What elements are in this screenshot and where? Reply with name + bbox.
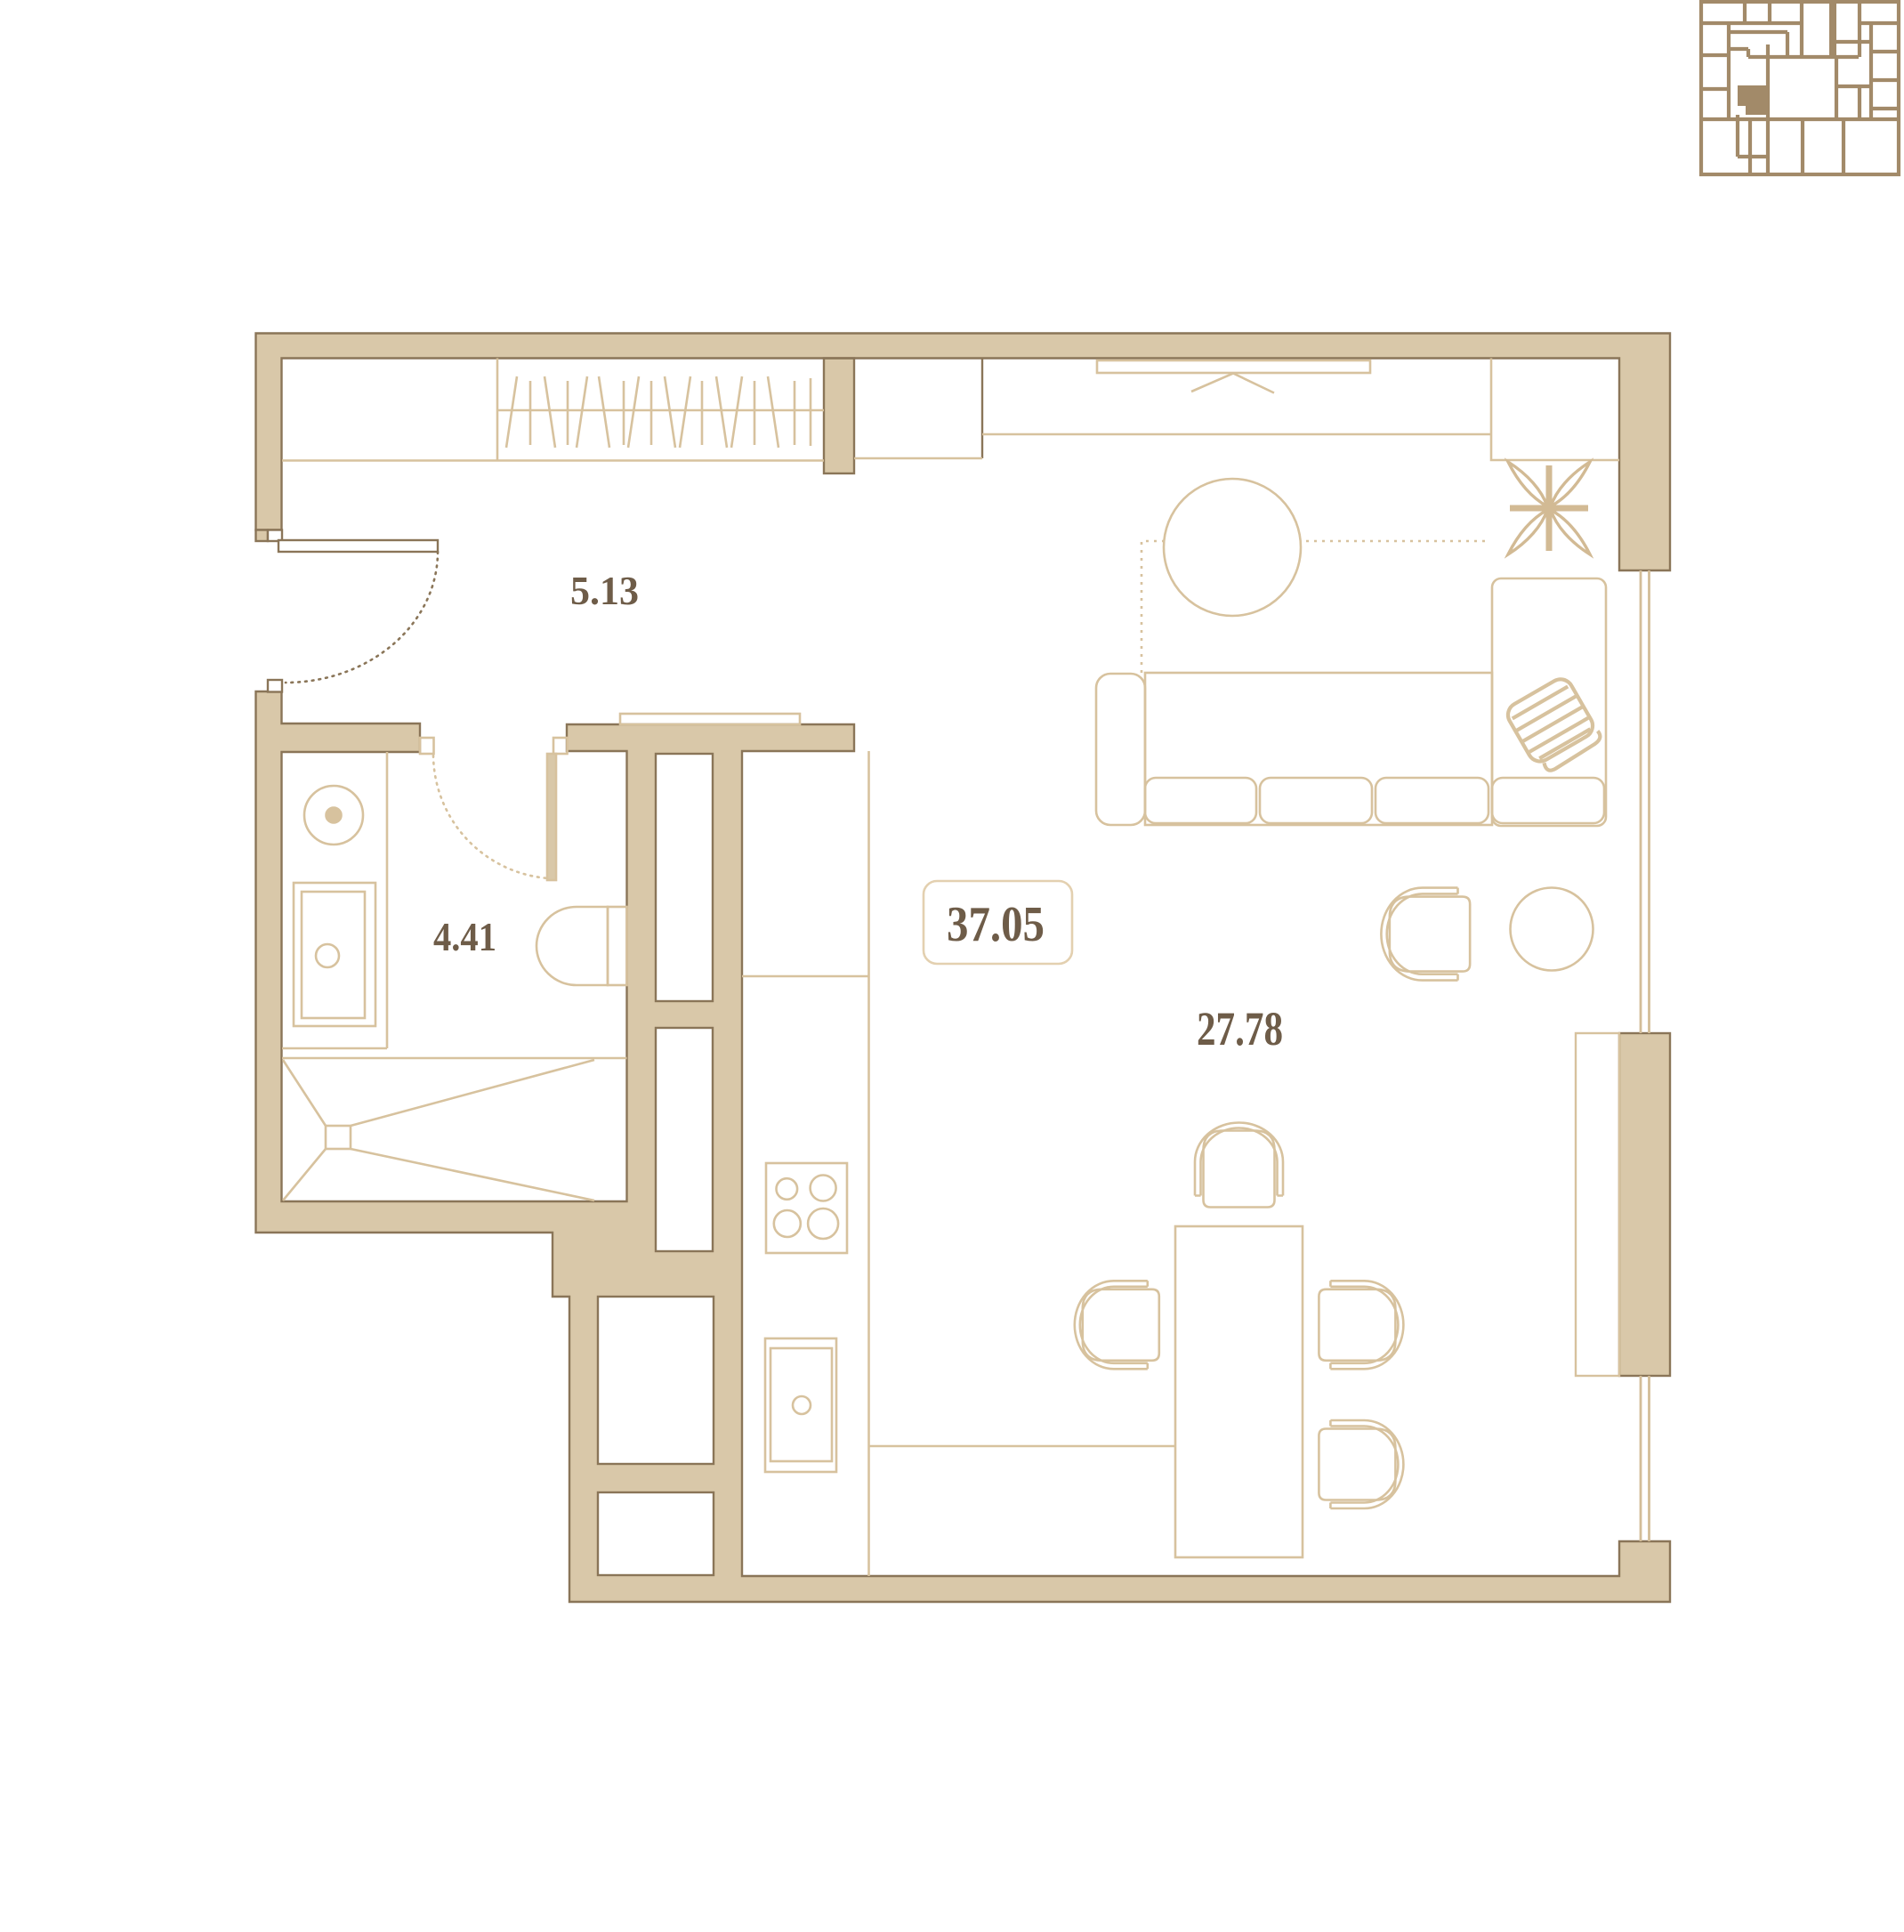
svg-text:27.78: 27.78: [1197, 1002, 1283, 1055]
svg-text:5.13: 5.13: [570, 568, 639, 613]
svg-text:37.05: 37.05: [947, 897, 1045, 952]
svg-text:4.41: 4.41: [433, 914, 496, 959]
